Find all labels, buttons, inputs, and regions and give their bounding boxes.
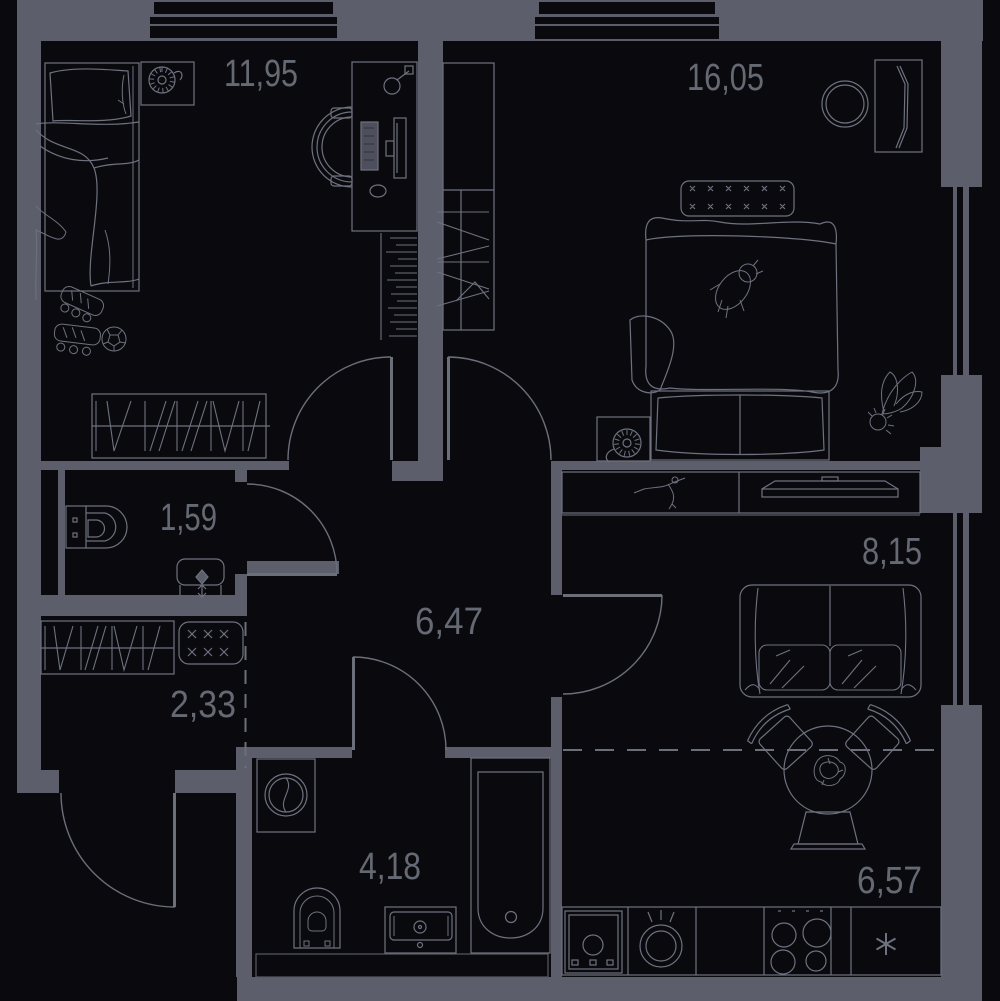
svg-text:2,33: 2,33 [170,684,236,726]
svg-text:6,47: 6,47 [415,601,483,643]
svg-text:8,15: 8,15 [862,531,922,573]
svg-text:16,05: 16,05 [687,57,764,99]
svg-text:4,18: 4,18 [359,846,421,888]
svg-text:6,57: 6,57 [857,860,922,902]
svg-text:1,59: 1,59 [160,497,217,539]
svg-text:11,95: 11,95 [224,53,298,95]
